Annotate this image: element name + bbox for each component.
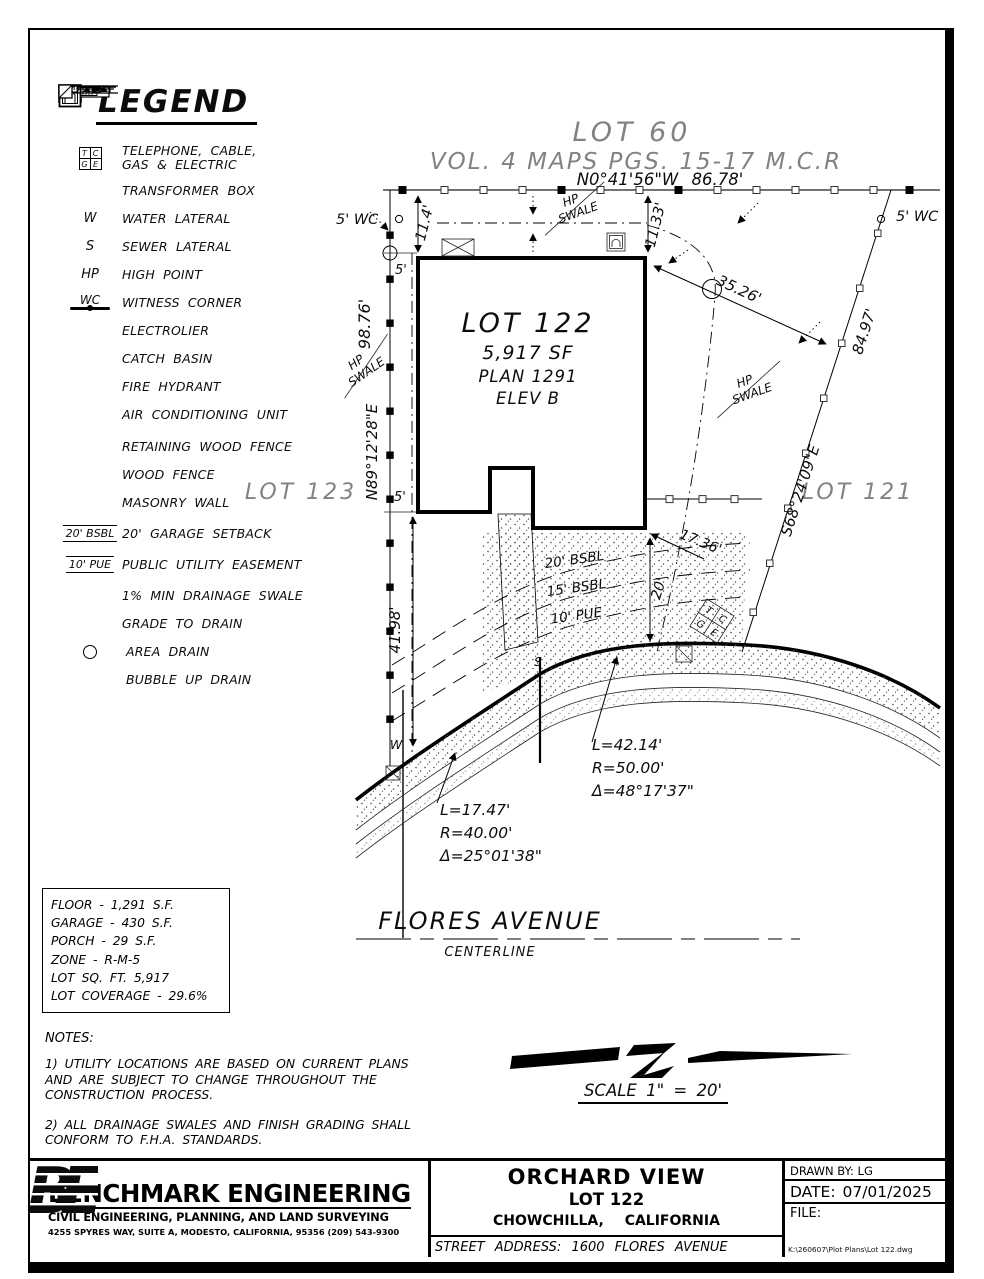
meta-panel: DRAWN BY: LG DATE: 07/01/2025 FILE: K:\2… (785, 1161, 945, 1257)
witness-corner-left-mark (395, 215, 402, 222)
dim-11-33: 11.33' (643, 196, 670, 252)
svg-text:FLORES AVENUE: FLORES AVENUE (378, 907, 602, 935)
legend-item-garage-setback: 20' BSBL 20' GARAGE SETBACK (58, 524, 368, 543)
lot-elev: ELEV B (496, 389, 560, 408)
bsbl-symbol: 20' BSBL (63, 525, 118, 542)
legend-item-tcge: TC GE TELEPHONE, CABLE, GAS & ELECTRIC (58, 144, 368, 172)
adjacent-lot-top-label: LOT 60 (573, 117, 692, 148)
svg-text:41.98': 41.98' (386, 606, 404, 653)
legend-item-bubble-up: BUBBLE UP DRAIN (58, 670, 368, 689)
note-2: 2) ALL DRAINAGE SWALES AND FINISH GRADIN… (45, 1117, 413, 1148)
pue-symbol: 10' PUE (66, 556, 114, 573)
benchmark-logo: B E (30, 1161, 98, 1221)
legend-item-witness-corner: WC WITNESS CORNER (58, 293, 368, 312)
dim-35-26: 35.26' (654, 266, 826, 344)
project-city: CHOWCHILLA, CALIFORNIA (431, 1213, 782, 1235)
dim-84-97: 84.97' (848, 306, 880, 356)
legend-item-highpoint: HP HIGH POINT (58, 265, 368, 284)
stat-zone: ZONE - R-M-5 (51, 951, 221, 969)
legend-item-swale: 1% MIN DRAINAGE SWALE (58, 586, 368, 605)
legend-item-wood-fence: WOOD FENCE (58, 465, 368, 484)
project-lot: LOT 122 (431, 1190, 782, 1209)
rear-swale: HP SWALE (437, 181, 647, 252)
area-drain-icon (83, 645, 97, 659)
sewer-label: S (534, 654, 542, 669)
stat-garage: GARAGE - 430 S.F. (51, 914, 221, 932)
svg-text:11.33': 11.33' (643, 201, 670, 249)
file-label: FILE: (785, 1204, 945, 1245)
file-path: K:\260607\Plot Plans\Lot 122.dwg (785, 1245, 945, 1257)
project-title: ORCHARD VIEW (431, 1165, 782, 1189)
ac-unit-mark (607, 233, 625, 251)
dim-11-4: 11.4' (413, 196, 437, 252)
title-block: B E BENCHMARK ENGINEERING CIVIL ENGINEER… (30, 1158, 945, 1257)
legend-item-masonry-wall: MASONRY WALL (58, 493, 368, 512)
legend-item-grade-to-drain: GRADE TO DRAIN (58, 614, 368, 633)
plot-plan-sheet: LOT 60 VOL. 4 MAPS PGS. 15-17 M.C.R N0°4… (0, 0, 984, 1279)
lot-area: 5,917 SF (482, 342, 573, 364)
street-name: FLORES AVENUE CENTERLINE (356, 907, 800, 960)
svg-text:SCALE 1" = 20': SCALE 1" = 20' (584, 1081, 722, 1100)
svg-text:Δ=48°17'37": Δ=48°17'37" (591, 782, 694, 800)
project-street-address: STREET ADDRESS: 1600 FLORES AVENUE (431, 1235, 782, 1257)
legend-item-electrolier: ELECTROLIER (58, 321, 368, 340)
drawn-by: DRAWN BY: LG (785, 1161, 945, 1181)
lot-name: LOT 122 (461, 308, 594, 339)
notes-title: NOTES: (45, 1031, 413, 1046)
firm-name: BENCHMARK ENGINEERING (48, 1181, 411, 1209)
masonry-wall-line (646, 496, 762, 503)
svg-text:11.4': 11.4' (413, 203, 437, 242)
date: DATE: 07/01/2025 (785, 1181, 945, 1204)
five-foot-offset-line (384, 253, 417, 762)
project-panel: ORCHARD VIEW LOT 122 CHOWCHILLA, CALIFOR… (428, 1161, 785, 1257)
note-1: 1) UTILITY LOCATIONS ARE BASED ON CURREN… (45, 1056, 413, 1103)
legend-item-fire-hydrant: FIRE HYDRANT (58, 377, 368, 396)
scale-label: SCALE 1" = 20' (578, 1081, 728, 1103)
legend-item-sewer: S SEWER LATERAL (58, 237, 368, 256)
legend-item-water: W WATER LATERAL (58, 209, 368, 228)
curve-data-left: L=17.47' R=40.00' Δ=25°01'38" (437, 753, 542, 865)
svg-text:E: E (60, 1161, 98, 1221)
witness-corner-icon: WC (70, 295, 110, 310)
svg-text:Δ=25°01'38": Δ=25°01'38" (439, 847, 542, 865)
firm-tagline: CIVIL ENGINEERING, PLANNING, AND LAND SU… (48, 1211, 411, 1224)
west-boundary-line (387, 190, 393, 766)
legend-item-pue: 10' PUE PUBLIC UTILITY EASEMENT (58, 555, 368, 574)
svg-text:CENTERLINE: CENTERLINE (444, 945, 535, 960)
lot-statistics-box: FLOOR - 1,291 S.F. GARAGE - 430 S.F. POR… (42, 888, 230, 1013)
svg-text:35.26': 35.26' (714, 271, 764, 307)
witness-corner-right-label: 5' WC (896, 209, 939, 225)
sewer-lateral-symbol: S (58, 239, 122, 254)
porch-walk (498, 514, 538, 650)
legend-item-ac-unit: AIR CONDITIONING UNIT (58, 405, 368, 424)
utility-pad-mark (442, 239, 474, 256)
legend-item-transformer: TRANSFORMER BOX (58, 181, 368, 200)
stat-porch: PORCH - 29 S.F. (51, 932, 221, 950)
adjacent-lot-right-label: LOT 121 (802, 480, 914, 505)
offset-dim-top: 5' (395, 263, 407, 278)
firm-panel: B E BENCHMARK ENGINEERING CIVIL ENGINEER… (30, 1161, 428, 1257)
lot-plan: PLAN 1291 (478, 367, 577, 386)
notes-section: NOTES: 1) UTILITY LOCATIONS ARE BASED ON… (45, 1031, 413, 1162)
bubble-up-drain-icon (58, 84, 73, 99)
scale-bar (510, 1043, 852, 1078)
east-boundary-line (742, 190, 891, 652)
water-lateral-symbol: W (58, 211, 122, 226)
stat-coverage: LOT COVERAGE - 29.6% (51, 987, 221, 1005)
water-label: W (390, 737, 403, 752)
high-point-symbol: HP (58, 267, 122, 282)
tcge-icon: TC GE (79, 147, 101, 169)
svg-text:L=42.14': L=42.14' (592, 736, 662, 754)
stat-floor: FLOOR - 1,291 S.F. (51, 896, 221, 914)
legend-item-retaining-fence: RETAINING WOOD FENCE (58, 437, 368, 456)
svg-text:R=40.00': R=40.00' (440, 824, 512, 842)
svg-text:L=17.47': L=17.47' (440, 801, 510, 819)
firm-address: 4255 SPYRES WAY, SUITE A, MODESTO, CALIF… (48, 1227, 411, 1237)
legend: LEGEND TC GE TELEPHONE, CABLE, GAS & ELE… (58, 84, 368, 689)
svg-text:R=50.00': R=50.00' (592, 759, 664, 777)
stat-lot-sqft: LOT SQ. FT. 5,917 (51, 969, 221, 987)
legend-item-catch-basin: CATCH BASIN (58, 349, 368, 368)
legend-item-area-drain: AREA DRAIN (58, 642, 368, 661)
legend-title: LEGEND (96, 84, 257, 125)
offset-dim-mid: 5' (394, 490, 406, 505)
